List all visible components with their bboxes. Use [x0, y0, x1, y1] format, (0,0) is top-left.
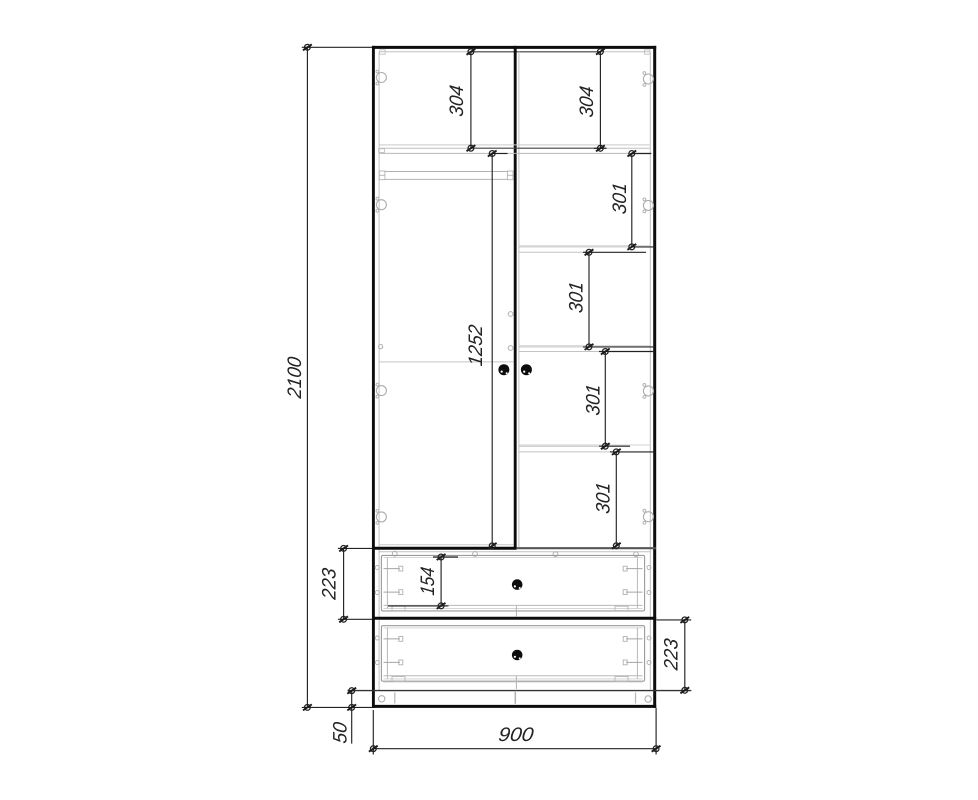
svg-text:304: 304 [446, 84, 468, 118]
svg-text:2100: 2100 [284, 356, 306, 401]
svg-text:223: 223 [319, 567, 341, 602]
svg-text:154: 154 [417, 566, 439, 597]
svg-text:304: 304 [576, 85, 598, 119]
svg-text:301: 301 [566, 280, 588, 314]
svg-text:223: 223 [661, 637, 683, 672]
svg-text:1252: 1252 [465, 323, 487, 367]
svg-text:900: 900 [497, 724, 535, 746]
svg-text:301: 301 [582, 383, 604, 417]
svg-text:301: 301 [592, 481, 614, 515]
svg-text:50: 50 [330, 721, 352, 745]
svg-text:301: 301 [609, 182, 631, 216]
